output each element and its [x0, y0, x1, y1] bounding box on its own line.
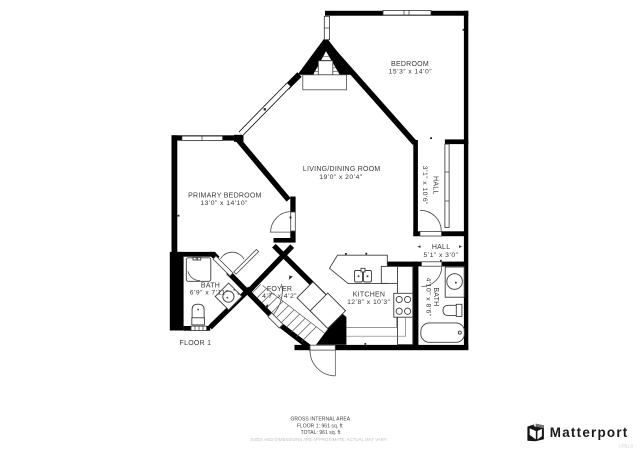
svg-text:12’8” x 10’3”: 12’8” x 10’3”	[347, 299, 391, 306]
svg-text:BATH: BATH	[432, 287, 439, 306]
svg-text:KITCHEN: KITCHEN	[353, 292, 385, 299]
svg-text:LIVING/DINING ROOM: LIVING/DINING ROOM	[303, 166, 381, 173]
svg-text:FLOOR 1: 961 sq. ft: FLOOR 1: 961 sq. ft	[297, 423, 343, 429]
svg-text:6’9” x 7’11”: 6’9” x 7’11”	[190, 290, 229, 297]
svg-text:CPB1.0: CPB1.0	[619, 444, 634, 449]
svg-text:TOTAL: 961 sq. ft: TOTAL: 961 sq. ft	[301, 430, 341, 436]
svg-text:SIZES AND DIMENSIONS ARE APPRO: SIZES AND DIMENSIONS ARE APPROXIMATE, AC…	[250, 437, 387, 442]
svg-text:FOYER: FOYER	[267, 286, 292, 293]
svg-text:Matterport: Matterport	[550, 425, 629, 440]
svg-text:3’1” x 10’6”: 3’1” x 10’6”	[421, 166, 428, 205]
svg-text:PRIMARY BEDROOM: PRIMARY BEDROOM	[188, 193, 262, 200]
svg-text:HALL: HALL	[431, 176, 438, 195]
svg-text:GROSS INTERNAL AREA: GROSS INTERNAL AREA	[290, 416, 350, 422]
svg-text:19’0” x 20’4”: 19’0” x 20’4”	[319, 174, 363, 181]
svg-text:BATH: BATH	[201, 282, 220, 289]
svg-text:4’10” x 8’6”: 4’10” x 8’6”	[425, 278, 432, 317]
svg-text:4’7” x 4’2”: 4’7” x 4’2”	[262, 293, 297, 300]
svg-text:5’1” x 3’0”: 5’1” x 3’0”	[424, 252, 459, 259]
svg-text:13’0” x 14’10”: 13’0” x 14’10”	[200, 200, 248, 207]
svg-text:BEDROOM: BEDROOM	[391, 61, 429, 68]
svg-text:15’3” x 14’0”: 15’3” x 14’0”	[389, 69, 433, 76]
svg-text:HALL: HALL	[432, 244, 451, 251]
svg-text:FLOOR 1: FLOOR 1	[180, 340, 212, 347]
